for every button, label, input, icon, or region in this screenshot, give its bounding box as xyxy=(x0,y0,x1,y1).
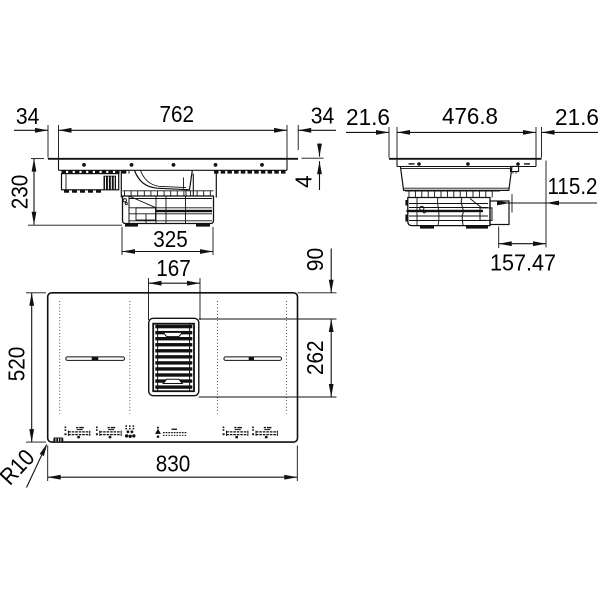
svg-text:325: 325 xyxy=(153,226,188,252)
svg-text:762: 762 xyxy=(160,101,195,127)
svg-text:520: 520 xyxy=(4,347,30,382)
svg-text:34: 34 xyxy=(16,103,40,129)
svg-text:21.6: 21.6 xyxy=(346,104,390,130)
svg-text:34: 34 xyxy=(311,103,335,129)
svg-text:230: 230 xyxy=(7,175,33,210)
svg-text:157.47: 157.47 xyxy=(490,250,556,276)
svg-text:R10: R10 xyxy=(0,444,39,490)
svg-text:115.2: 115.2 xyxy=(548,173,598,199)
svg-text:476.8: 476.8 xyxy=(442,103,498,129)
svg-text:21.6: 21.6 xyxy=(555,104,599,130)
svg-text:262: 262 xyxy=(302,341,328,376)
svg-text:4: 4 xyxy=(291,175,317,188)
svg-text:90: 90 xyxy=(302,248,328,272)
svg-text:167: 167 xyxy=(156,255,191,281)
svg-text:830: 830 xyxy=(156,451,191,477)
